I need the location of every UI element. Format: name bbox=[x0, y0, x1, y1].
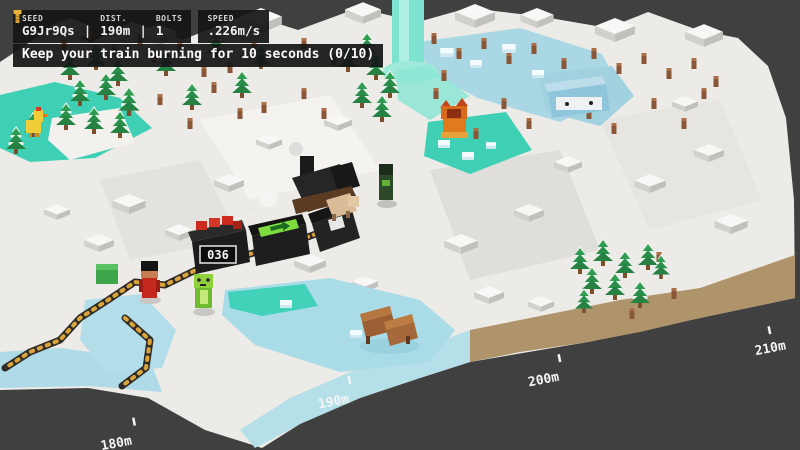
speed-value: .226m/s bbox=[207, 24, 260, 38]
hud-stats-panel: SEED G9Jr9Qs | DIST. 190m | BOLTS 1 bbox=[13, 10, 191, 43]
steam-puff bbox=[245, 201, 257, 213]
hud: SEED G9Jr9Qs | DIST. 190m | BOLTS 1 bbox=[13, 10, 269, 43]
counter-value: 036 bbox=[207, 248, 229, 262]
hud-separator: | bbox=[84, 24, 92, 38]
speed-label: SPEED bbox=[207, 14, 260, 23]
seed-label: SEED bbox=[22, 14, 75, 23]
green-crate[interactable] bbox=[96, 264, 118, 284]
smoke-puff bbox=[289, 142, 303, 156]
seed-value: G9Jr9Qs bbox=[22, 24, 75, 38]
hud-separator: | bbox=[139, 24, 147, 38]
game-world-canvas[interactable]: 036 bbox=[0, 0, 800, 450]
hud-speed-panel: SPEED .226m/s bbox=[198, 10, 269, 43]
bolts-label: BOLTS bbox=[156, 14, 183, 23]
hud-bolts: BOLTS 1 bbox=[156, 14, 183, 38]
bolts-value: 1 bbox=[156, 24, 164, 38]
player-red[interactable] bbox=[139, 261, 161, 304]
hud-seed: SEED G9Jr9Qs bbox=[22, 14, 75, 38]
hud-speed: SPEED .226m/s bbox=[207, 14, 260, 38]
objective-banner: Keep your train burning for 10 seconds (… bbox=[13, 44, 383, 67]
distance-value: 190m bbox=[100, 24, 130, 38]
player-green[interactable] bbox=[193, 274, 215, 316]
hud-distance: DIST. 190m bbox=[100, 14, 130, 38]
distance-label: DIST. bbox=[100, 14, 130, 23]
steam-puff bbox=[259, 189, 277, 207]
bolt-icon bbox=[13, 10, 22, 23]
game-screen[interactable]: 036 bbox=[0, 0, 800, 450]
